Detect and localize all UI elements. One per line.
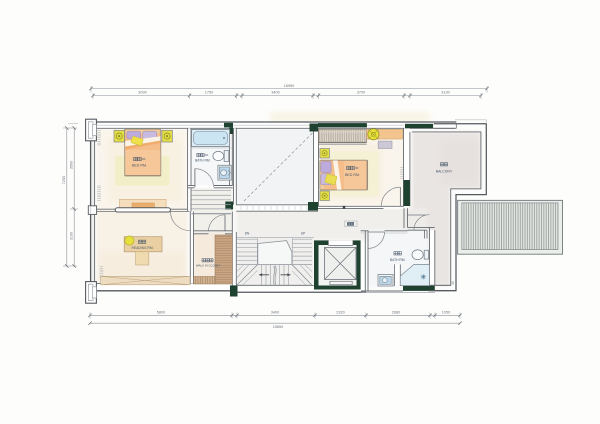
svg-text:WALK IN CLOSET: WALK IN CLOSET: [196, 264, 220, 268]
svg-text:BATH RM.: BATH RM.: [390, 258, 406, 262]
svg-text:1050: 1050: [442, 310, 450, 314]
svg-text:2320: 2320: [336, 310, 344, 314]
svg-text:BALCONY: BALCONY: [436, 169, 453, 173]
svg-text:DN: DN: [245, 231, 250, 235]
svg-text:7200: 7200: [62, 176, 66, 184]
svg-text:BATH RM: BATH RM: [195, 159, 210, 163]
svg-text:15650: 15650: [273, 325, 284, 329]
svg-text:3100: 3100: [69, 232, 73, 240]
svg-text:5800: 5800: [157, 310, 165, 314]
svg-text:3090: 3090: [138, 91, 146, 95]
svg-text:UP: UP: [301, 231, 305, 235]
svg-text:READING RM.: READING RM.: [132, 246, 154, 250]
svg-text:1750: 1750: [205, 91, 213, 95]
svg-text:3130: 3130: [441, 91, 449, 95]
svg-text:2680: 2680: [392, 310, 400, 314]
svg-text:3500: 3500: [69, 161, 73, 169]
svg-text:3700: 3700: [357, 91, 365, 95]
svg-text:BED RM.: BED RM.: [345, 173, 360, 177]
svg-text:BED RM.: BED RM.: [132, 164, 147, 168]
svg-text:16950: 16950: [284, 84, 295, 88]
svg-text:3400: 3400: [271, 91, 279, 95]
svg-text:3400: 3400: [271, 310, 279, 314]
